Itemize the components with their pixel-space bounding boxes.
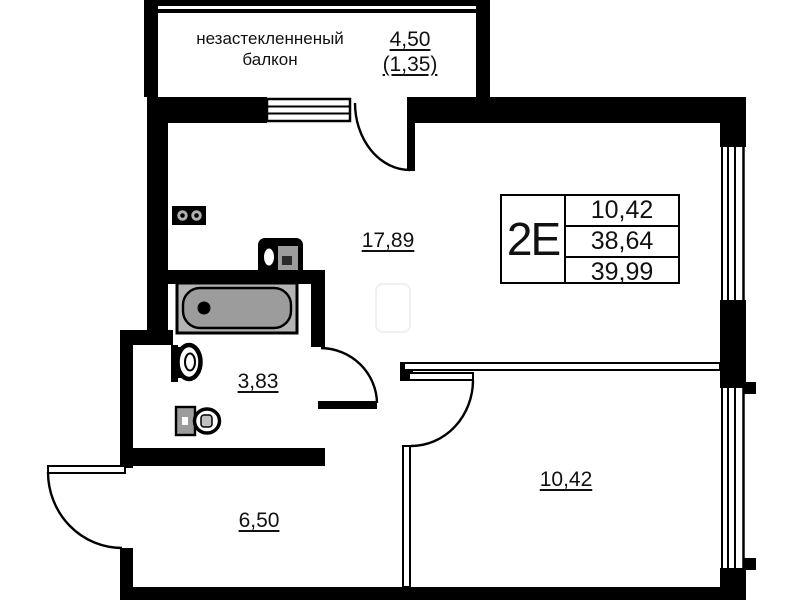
- apartment-areas-column: 10,42 38,64 39,99: [566, 196, 678, 282]
- apartment-type-label: 2Е: [502, 196, 566, 282]
- entry-door-arc: [48, 472, 122, 548]
- toilet-icon: [176, 407, 220, 435]
- top-wall-right: [407, 97, 746, 123]
- floor-plan: незастекленненый балкон 4,50 (1,35) 17,8…: [0, 0, 799, 600]
- window-sill-tab-top: [744, 382, 756, 394]
- living-kitchen-area-label: 17,89: [328, 228, 448, 254]
- hallway-area-label: 6,50: [199, 508, 319, 534]
- bathtub-icon: [177, 283, 297, 333]
- balcony-label-line2: балкон: [170, 49, 370, 70]
- balcony-label: незастекленненый балкон: [170, 28, 370, 71]
- window-right-upper: [722, 147, 744, 300]
- right-wall-mid: [720, 300, 746, 388]
- bathroom-area-label: 3,83: [198, 369, 318, 395]
- balcony-door-panel: [407, 104, 415, 171]
- bedroom-area-label: 10,42: [506, 467, 626, 493]
- bathroom-bottom-wall: [120, 448, 325, 466]
- sink-icon: [172, 345, 201, 379]
- balcony-area-reduced-value: (1,35): [372, 52, 448, 78]
- partition-living-bedroom: [404, 363, 720, 370]
- info-row-total-area: 39,99: [566, 258, 678, 287]
- washing-machine-icon: [258, 238, 303, 277]
- window-right-lower: [722, 388, 744, 568]
- entry-door-panel: [48, 466, 125, 473]
- balcony-area-value: 4,50: [375, 27, 445, 53]
- bedroom-door-arc: [411, 380, 473, 446]
- apartment-info-box: 2Е 10,42 38,64 39,99: [500, 194, 680, 284]
- bathroom-right-wall: [311, 270, 325, 347]
- partition-hall-bedroom: [403, 446, 410, 587]
- stove-icon: [172, 206, 206, 225]
- bedroom-door-panel: [409, 373, 473, 380]
- balcony-wall-left: [144, 0, 158, 97]
- balcony-window: [267, 99, 350, 121]
- bottom-wall: [120, 587, 746, 600]
- balcony-parapet-outer: [144, 0, 490, 6]
- faint-artifact: [376, 284, 410, 332]
- info-row-living-area: 10,42: [566, 196, 678, 227]
- balcony-wall-right: [476, 0, 490, 97]
- floor-plan-drawing: [0, 0, 799, 600]
- balcony-door-arc: [355, 103, 410, 170]
- info-row-apartment-area: 38,64: [566, 227, 678, 258]
- balcony-parapet-inner: [158, 9, 477, 13]
- left-wall-jog: [120, 330, 173, 345]
- bathroom-door-arc: [321, 348, 377, 403]
- bathroom-door-panel: [318, 401, 377, 409]
- left-wall-upper: [147, 97, 168, 335]
- balcony-label-line1: незастекленненый: [170, 28, 370, 49]
- window-sill-tab-bottom: [744, 558, 756, 570]
- right-wall-top: [720, 97, 746, 147]
- right-wall-bottom: [720, 568, 746, 600]
